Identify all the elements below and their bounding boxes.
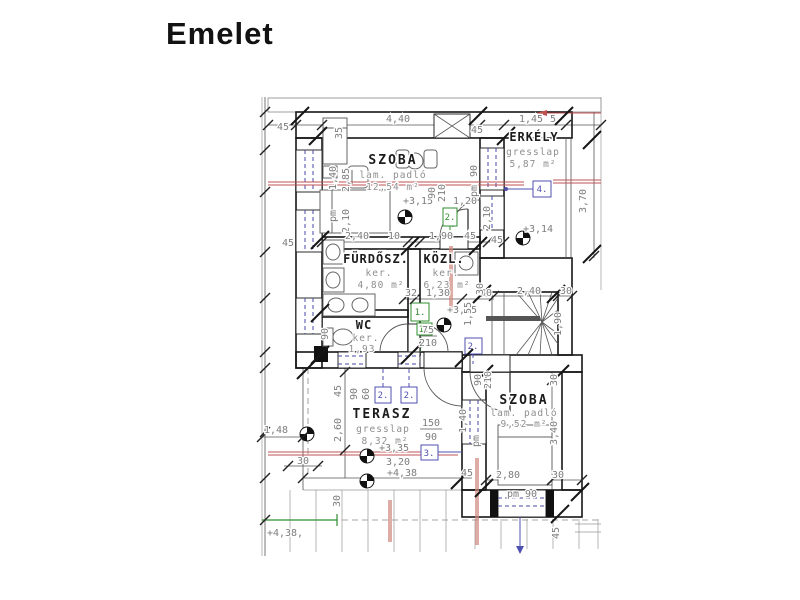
room-floor: gresslap: [356, 424, 410, 435]
room-furdoszoba: FÜRDŐSZ. ker. 4,80 m²: [343, 251, 409, 291]
benchmark-icon: [360, 474, 374, 488]
tag-label: 1.: [415, 308, 426, 318]
room-szoba1: SZOBA lam. padló 12,54 m²: [359, 153, 426, 193]
dim: 4,40: [386, 114, 410, 125]
dim: pm: [471, 435, 482, 447]
level-ground: +4,38,: [267, 528, 303, 539]
dim: 30: [297, 456, 309, 467]
blue-arrow: [516, 546, 524, 554]
dim: 2,10: [341, 209, 352, 233]
room-area: 5,87 m²: [509, 159, 556, 170]
dim: 2,40: [517, 286, 541, 297]
room-area: 1,93: [349, 344, 376, 355]
dim: 1,40: [328, 166, 339, 190]
tag-label: 2.: [404, 391, 415, 401]
tag-label: 2.: [468, 342, 479, 352]
dim: 3,40: [549, 421, 560, 445]
dim: 45: [461, 468, 473, 479]
room-terasz: TERASZ gresslap 8,32 m²: [353, 407, 412, 447]
dim: 150: [422, 418, 440, 429]
dim: 45: [277, 122, 289, 133]
dim: 45: [464, 231, 476, 242]
room-name: TERASZ: [353, 407, 412, 422]
dim: 90: [425, 432, 437, 443]
dim: 1,30: [426, 288, 450, 299]
dim: 3,20: [386, 457, 410, 468]
dim: 90: [349, 388, 360, 400]
level-terasz-edge: +4,38: [387, 468, 417, 479]
room-floor: lam. padló: [490, 408, 557, 419]
benchmark-icon: [300, 427, 314, 441]
tag-door-szoba1: 2.: [443, 208, 457, 226]
dim: 1,90: [429, 231, 453, 242]
dim: 30: [560, 286, 572, 297]
bidet: [323, 268, 344, 292]
dim: 2,80: [496, 470, 520, 481]
dim: 90: [320, 328, 331, 340]
washbasin-cabinet: [323, 240, 344, 264]
dim: pm: [469, 185, 480, 197]
room-area: 12,54 m²: [366, 182, 420, 193]
tag-window-terasz: 3.: [421, 445, 438, 460]
room-floor: ker.: [353, 333, 380, 344]
tag-window-a: 2.: [375, 387, 391, 403]
room-area: 9,52 m²: [500, 419, 547, 430]
room-floor: ker.: [366, 268, 393, 279]
room-name: SZOBA: [499, 393, 548, 408]
level-erkely: +3,14: [523, 224, 553, 235]
dim: 2,10: [482, 206, 493, 230]
dim: 3,70: [578, 189, 589, 213]
dim: 1,45: [519, 114, 543, 125]
dim: 45: [551, 527, 562, 539]
room-floor: lam. padló: [359, 170, 426, 181]
tag-door-erkely: 4.: [533, 181, 551, 197]
tag-window-c: 2.: [465, 338, 482, 354]
benchmark-icon: [437, 318, 451, 332]
dim: 10: [388, 231, 400, 242]
tag-door-furdo: 1.: [411, 303, 429, 321]
room-floor: ker.: [433, 268, 460, 279]
benchmark-icon: [398, 210, 412, 224]
dim: 35: [334, 127, 345, 139]
roof-hatch-strip: [268, 98, 601, 112]
benchmark-icon: [360, 449, 374, 463]
dim: 210: [483, 371, 494, 389]
room-erkely: ERKÉLY gresslap 5,87 m²: [506, 129, 560, 170]
room-name: KÖZL.: [423, 251, 464, 266]
room-name: FÜRDŐSZ.: [343, 251, 409, 266]
tag-label: 2.: [378, 391, 389, 401]
dim: pm 90: [507, 489, 537, 500]
page-title: Emelet: [166, 16, 274, 51]
dim: 30: [332, 495, 343, 507]
tag-label: 2.: [445, 213, 456, 223]
dim: 45: [282, 238, 294, 249]
dim: 2,85: [341, 168, 352, 192]
dim: 2,60: [333, 418, 344, 442]
double-sink: [323, 294, 375, 316]
stair-handrail: [486, 316, 540, 321]
level-terasz: +3,35: [379, 443, 409, 454]
dim: 30: [552, 470, 564, 481]
room-name: SZOBA: [368, 153, 417, 168]
dim: 1,40: [458, 409, 469, 433]
dim: 45: [471, 125, 483, 136]
dim: 45: [333, 385, 344, 397]
dim: 1,90: [553, 312, 564, 336]
dim: 75: [422, 325, 434, 336]
dim: 30: [549, 374, 560, 386]
dim: 32: [405, 288, 417, 299]
tag-label: 3.: [424, 449, 435, 459]
bed-1: [323, 118, 347, 164]
dim: 1,55: [463, 302, 474, 326]
room-name: WC: [356, 318, 372, 332]
tag-window-b: 2.: [401, 387, 417, 403]
dim: pm: [328, 210, 339, 222]
room-name: ERKÉLY: [509, 129, 558, 144]
room-floor: gresslap: [506, 147, 560, 158]
dim: 5: [550, 114, 556, 125]
dim: 60: [361, 388, 372, 400]
dim: 90: [469, 165, 480, 177]
room-wc: WC ker. 1,93: [349, 318, 380, 355]
dim: 210: [419, 338, 437, 349]
dim: 210: [437, 184, 448, 202]
dim: 2,40: [345, 231, 369, 242]
tag-label: 4.: [537, 185, 548, 195]
floor-plan-canvas: Emelet: [0, 0, 800, 600]
dim: 30: [475, 283, 486, 295]
shaft-x-box: [434, 114, 470, 138]
room-area: 4,80 m²: [357, 280, 404, 291]
dim: 45: [491, 235, 503, 246]
room-szoba2: SZOBA lam. padló 9,52 m²: [490, 393, 557, 430]
dim: 1,48: [264, 425, 288, 436]
